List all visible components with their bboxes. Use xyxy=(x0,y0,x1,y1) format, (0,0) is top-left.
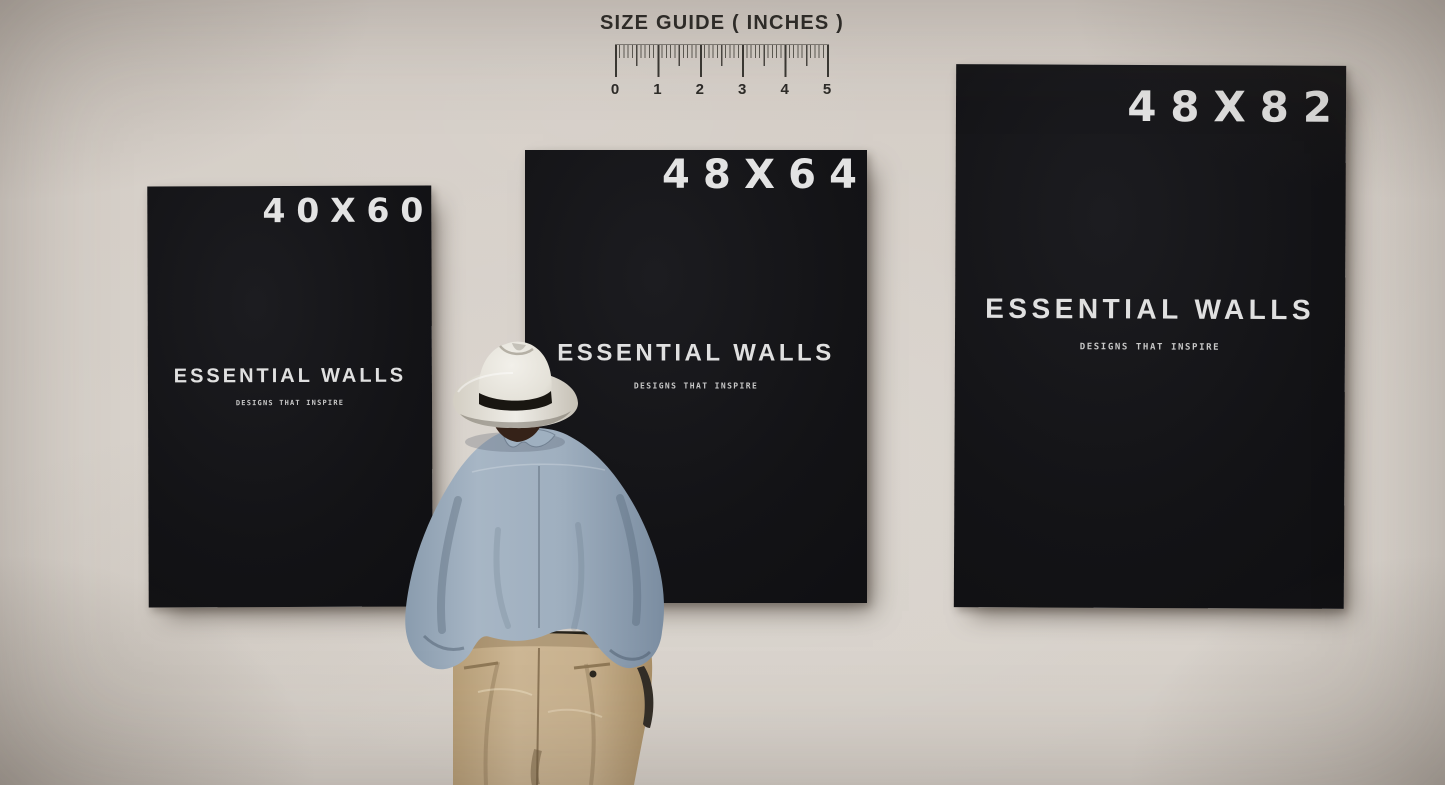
ruler-graphic: 0 1 2 3 4 5 xyxy=(597,44,847,99)
brand-tagline: DESIGNS THAT INSPIRE xyxy=(955,342,1345,354)
poster-size-label: 48X82 xyxy=(1127,82,1346,132)
poster-size-label: 48X64 xyxy=(662,152,870,198)
fedora-hat xyxy=(453,342,578,429)
ruler-label: 2 xyxy=(696,81,704,98)
ruler-ticks xyxy=(615,44,829,77)
size-guide-title: SIZE GUIDE ( INCHES ) xyxy=(597,12,847,35)
poster-brand-block: ESSENTIAL WALLS DESIGNS THAT INSPIRE xyxy=(955,293,1345,354)
ruler-label: 3 xyxy=(738,81,746,98)
poster-48x82: 48X82 ESSENTIAL WALLS DESIGNS THAT INSPI… xyxy=(954,64,1346,609)
ruler-label: 4 xyxy=(781,81,789,98)
ruler-numbers: 0 1 2 3 4 5 xyxy=(615,81,829,99)
ruler-label: 0 xyxy=(611,81,619,98)
pocket-button xyxy=(590,671,597,678)
brand-title: ESSENTIAL WALLS xyxy=(955,293,1345,327)
ruler-label: 1 xyxy=(653,81,661,98)
shirt xyxy=(405,428,664,669)
poster-size-label: 40X60 xyxy=(262,190,434,230)
size-guide: SIZE GUIDE ( INCHES ) 0 1 2 3 4 5 xyxy=(597,12,847,99)
man-figure xyxy=(388,330,688,785)
ruler-label: 5 xyxy=(823,81,831,98)
